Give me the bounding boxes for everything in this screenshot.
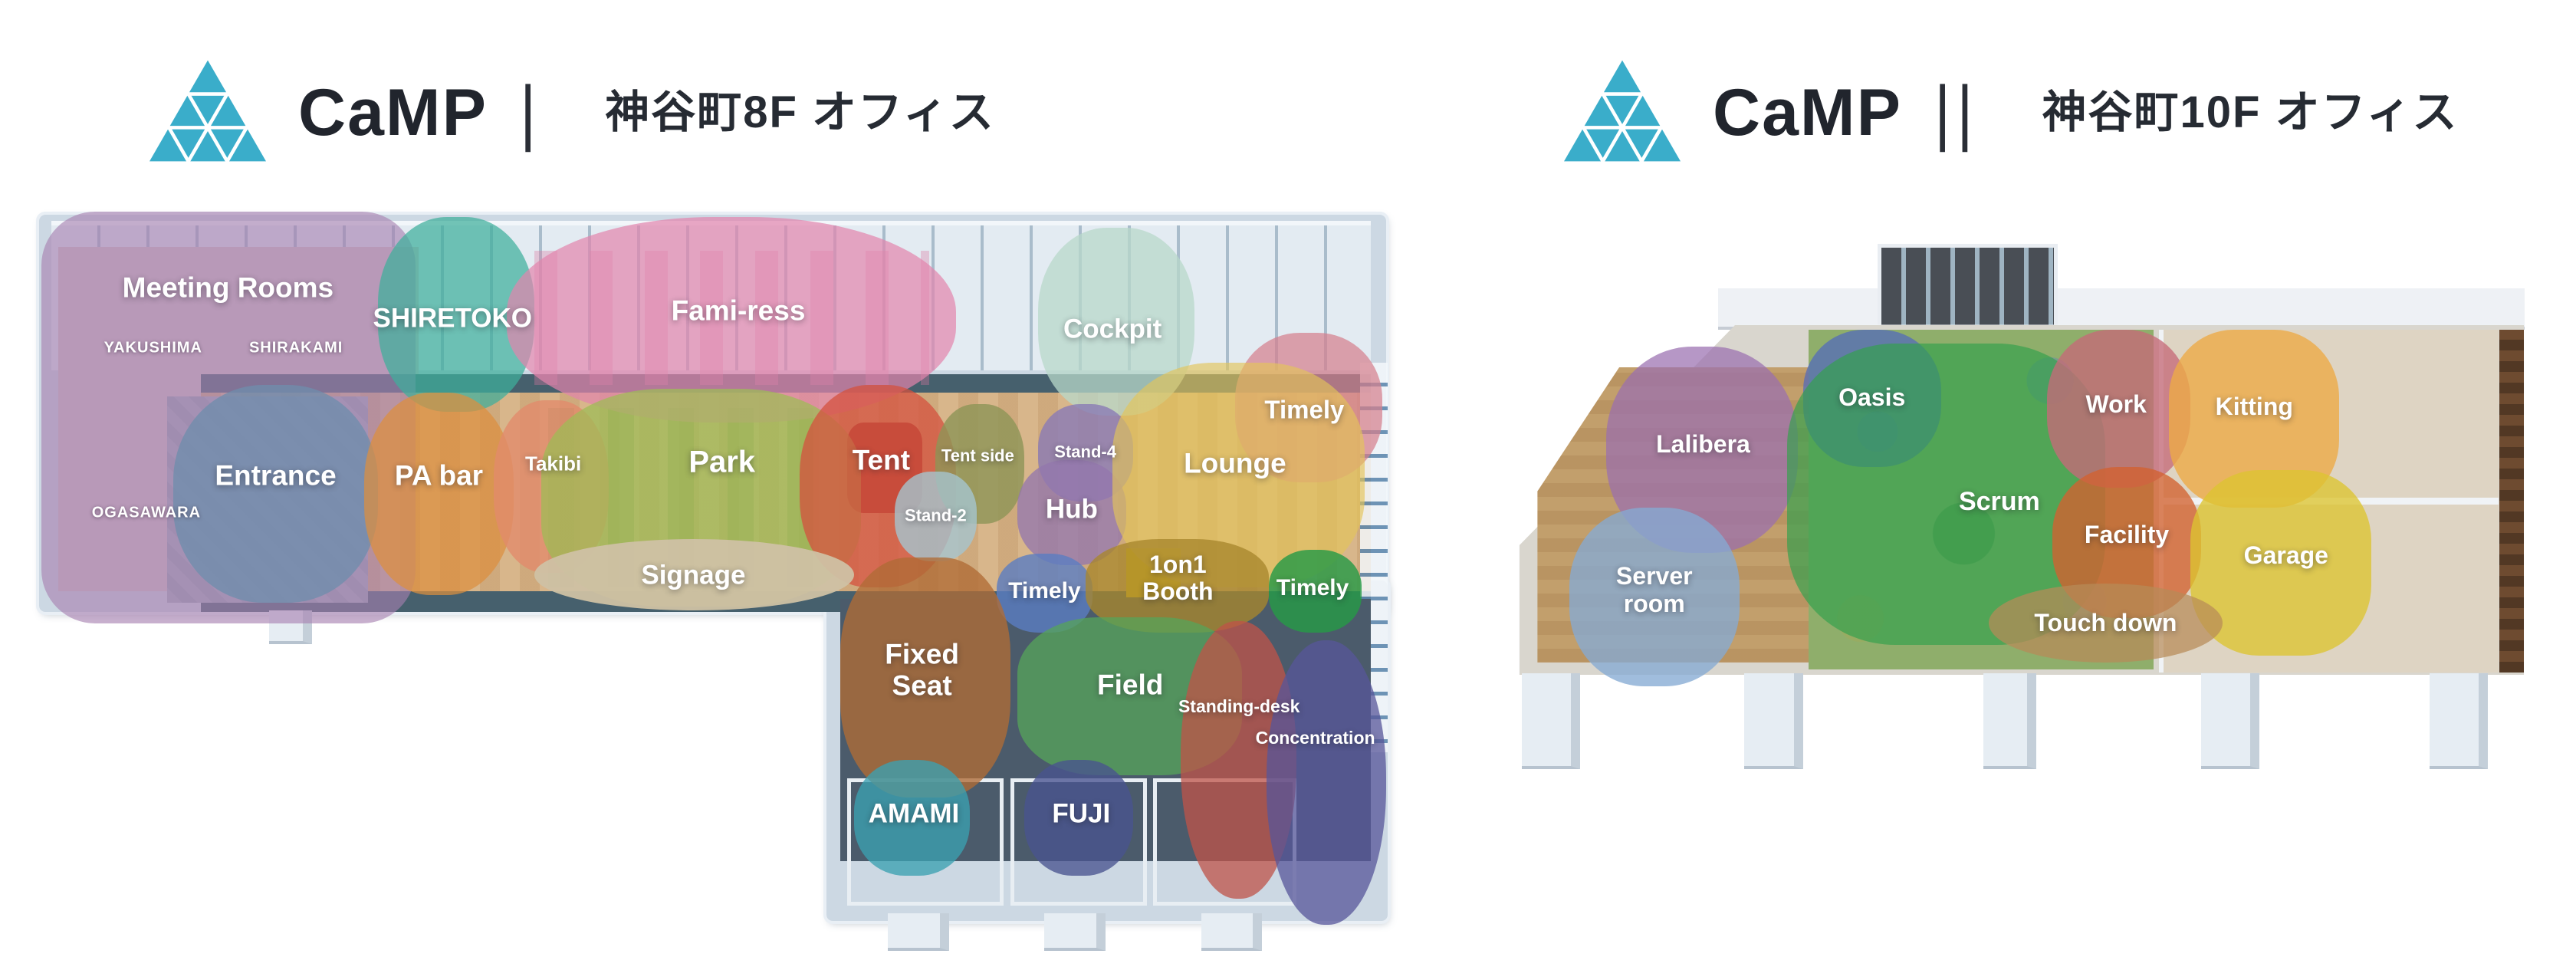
area-label-shiretoko: SHIRETOKO [373, 303, 532, 333]
area-label-kitting: Kitting [2216, 393, 2293, 421]
area-label-lounge: Lounge [1184, 447, 1286, 479]
area-label-fuji: FUJI [1052, 799, 1110, 829]
room-label-shirakami: SHIRAKAMI [249, 339, 343, 357]
area-label-scrum: Scrum [1959, 486, 2040, 515]
area-label-one-on-one-booth: 1on1 Booth [1142, 551, 1213, 607]
area-label-timely-booth-blue: Timely [1008, 578, 1081, 604]
page: CaMP | 神谷町8F オフィス CaMP || 神谷町10F オフィス [0, 0, 2576, 957]
floor-separator: || [1934, 77, 1980, 149]
area-label-amami: AMAMI [869, 799, 960, 829]
area-label-fixed-seat: Fixed Seat [885, 638, 959, 702]
room-label-yakushima: YAKUSHIMA [104, 339, 202, 357]
pillar-stub [2201, 673, 2259, 769]
area-label-park: Park [688, 446, 755, 480]
area-pa-bar [364, 393, 514, 595]
pillar-stub [1201, 913, 1263, 951]
area-label-field: Field [1097, 669, 1163, 701]
area-label-oasis: Oasis [1838, 384, 1905, 412]
camp-logo-icon [1564, 59, 1681, 166]
area-label-touch-down: Touch down [2034, 610, 2177, 637]
room-label-ogasawara: OGASAWARA [92, 504, 201, 521]
header-camp-1: CaMP | 神谷町8F オフィス [149, 48, 995, 178]
area-concentration [1267, 640, 1386, 925]
area-label-timely-window: Timely [1264, 396, 1344, 424]
pillar-stub [1744, 673, 1802, 769]
camp-logo-icon [149, 59, 266, 166]
area-label-server-room: Server room [1616, 563, 1693, 618]
pillar-stub [1044, 913, 1106, 951]
floor-title: 神谷町10F オフィス [2042, 90, 2459, 135]
area-label-cockpit: Cockpit [1063, 314, 1161, 344]
area-label-stand-2: Stand-2 [905, 507, 967, 526]
entrance-lobby [1878, 244, 2058, 332]
area-label-standing-desk: Standing-desk [1178, 697, 1299, 717]
pillar-stub [888, 913, 949, 951]
brand-name: CaMP [1713, 80, 1902, 146]
area-label-tent: Tent [853, 444, 910, 475]
floorplan-10f: LaliberaServer roomOasisScrumWorkFacilit… [1495, 230, 2557, 916]
area-label-timely-booth-green: Timely [1276, 575, 1349, 601]
area-label-fami-ress: Fami-ress [672, 294, 806, 326]
area-label-takibi: Takibi [525, 453, 581, 475]
area-label-lalibera: Lalibera [1656, 431, 1750, 459]
brand-name: CaMP [298, 80, 488, 146]
area-label-facility: Facility [2085, 521, 2169, 549]
area-label-pa-bar: PA bar [395, 459, 483, 491]
pillar-stub [1522, 673, 1580, 769]
right-wood-wall [2499, 330, 2524, 673]
area-label-garage: Garage [2244, 542, 2328, 570]
floor-separator: | [520, 77, 542, 149]
area-label-concentration: Concentration [1256, 728, 1375, 748]
roof-strip [1718, 288, 2525, 330]
area-label-hub: Hub [1046, 494, 1098, 524]
area-label-stand-4: Stand-4 [1054, 443, 1116, 462]
pillar-stub [1983, 673, 2036, 769]
area-label-signage: Signage [641, 560, 745, 590]
area-label-tent-side: Tent side [941, 447, 1014, 466]
floor-title: 神谷町8F オフィス [605, 90, 995, 135]
area-entrance [173, 385, 377, 602]
header-camp-2: CaMP || 神谷町10F オフィス [1564, 48, 2458, 178]
area-label-meeting-rooms: Meeting Rooms [123, 272, 333, 304]
area-label-entrance: Entrance [215, 459, 336, 491]
floorplan-8f: Meeting RoomsSHIRETOKOFami-ressCockpitTi… [31, 206, 1391, 955]
area-label-work: Work [2086, 391, 2147, 419]
pillar-stub [2430, 673, 2488, 769]
